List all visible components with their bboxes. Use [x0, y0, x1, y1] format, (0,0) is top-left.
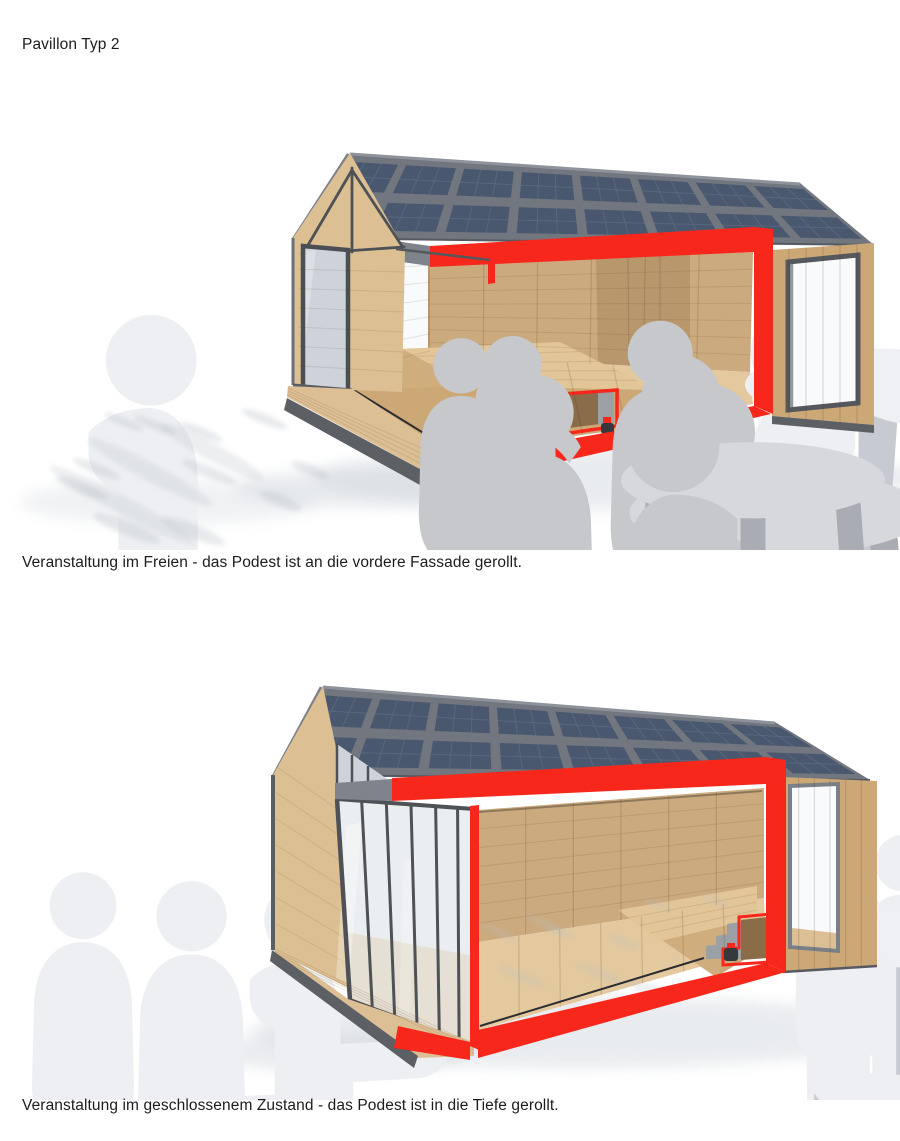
person-figure	[138, 881, 245, 1100]
page-title: Pavillon Typ 2	[22, 36, 120, 54]
render-pavillon-closed	[0, 640, 900, 1100]
podest-wheel	[724, 948, 738, 961]
wheel-mount	[727, 943, 735, 948]
red-glass-cut-band	[470, 805, 479, 1050]
caption-pavillon-closed: Veranstaltung im geschlossenem Zustand -…	[22, 1097, 559, 1115]
caption-pavillon-open: Veranstaltung im Freien - das Podest ist…	[22, 554, 522, 572]
red-vertical-band	[754, 227, 773, 414]
right-end-wall	[783, 777, 877, 972]
person-figure	[32, 872, 134, 1100]
right-end-wall	[772, 243, 874, 433]
render-pavillon-open	[0, 75, 900, 550]
red-vertical-band	[766, 757, 786, 972]
wheel-mount	[603, 417, 611, 423]
mullion	[458, 808, 460, 1041]
